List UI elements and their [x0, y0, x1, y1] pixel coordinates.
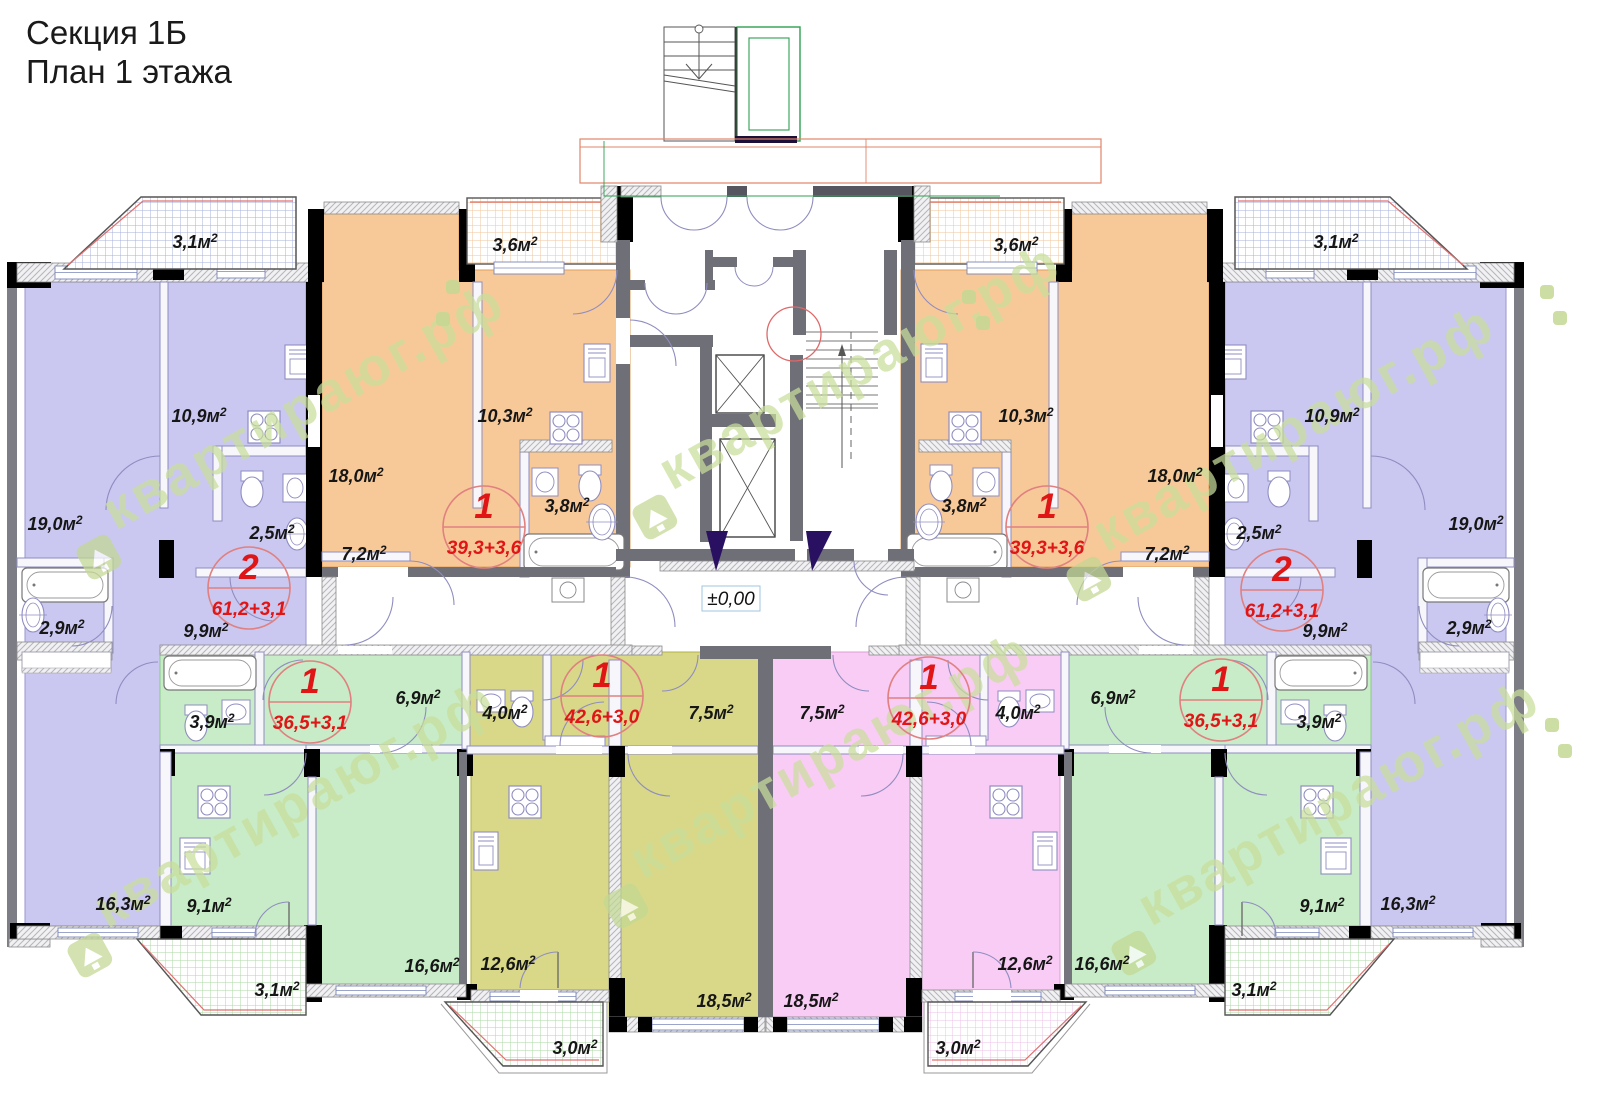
svg-text:16,3м2: 16,3м2 — [95, 893, 150, 914]
svg-text:1: 1 — [474, 487, 493, 526]
svg-text:1: 1 — [919, 658, 938, 697]
svg-text:16,6м2: 16,6м2 — [404, 955, 459, 976]
svg-text:39,3+3,6: 39,3+3,6 — [447, 538, 522, 559]
svg-text:61,2+3,1: 61,2+3,1 — [1245, 601, 1320, 622]
svg-text:19,0м2: 19,0м2 — [1448, 513, 1503, 534]
svg-text:18,0м2: 18,0м2 — [1147, 465, 1202, 486]
svg-text:2: 2 — [1271, 550, 1292, 589]
svg-text:1: 1 — [592, 656, 611, 695]
svg-text:10,3м2: 10,3м2 — [477, 405, 532, 426]
svg-text:План 1 этажа: План 1 этажа — [26, 53, 233, 90]
svg-text:10,9м2: 10,9м2 — [1304, 405, 1359, 426]
svg-text:10,3м2: 10,3м2 — [998, 405, 1053, 426]
svg-text:36,5+3,1: 36,5+3,1 — [273, 713, 348, 734]
svg-text:39,3+3,6: 39,3+3,6 — [1010, 538, 1085, 559]
svg-text:18,0м2: 18,0м2 — [328, 465, 383, 486]
svg-text:2: 2 — [238, 548, 259, 587]
svg-text:18,5м2: 18,5м2 — [696, 990, 751, 1011]
svg-text:16,6м2: 16,6м2 — [1074, 953, 1129, 974]
svg-text:10,9м2: 10,9м2 — [171, 405, 226, 426]
svg-text:12,6м2: 12,6м2 — [997, 953, 1052, 974]
svg-text:16,3м2: 16,3м2 — [1380, 893, 1435, 914]
svg-text:36,5+3,1: 36,5+3,1 — [1184, 711, 1259, 732]
svg-text:Секция 1Б: Секция 1Б — [26, 14, 187, 51]
svg-text:19,0м2: 19,0м2 — [27, 513, 82, 534]
svg-text:61,2+3,1: 61,2+3,1 — [212, 599, 287, 620]
svg-text:1: 1 — [300, 662, 319, 701]
svg-text:18,5м2: 18,5м2 — [783, 990, 838, 1011]
svg-text:1: 1 — [1211, 660, 1230, 699]
svg-text:±0,00: ±0,00 — [707, 589, 755, 610]
svg-text:42,6+3,0: 42,6+3,0 — [564, 707, 640, 728]
svg-text:1: 1 — [1037, 487, 1056, 526]
svg-text:12,6м2: 12,6м2 — [480, 953, 535, 974]
svg-text:42,6+3,0: 42,6+3,0 — [891, 709, 967, 730]
